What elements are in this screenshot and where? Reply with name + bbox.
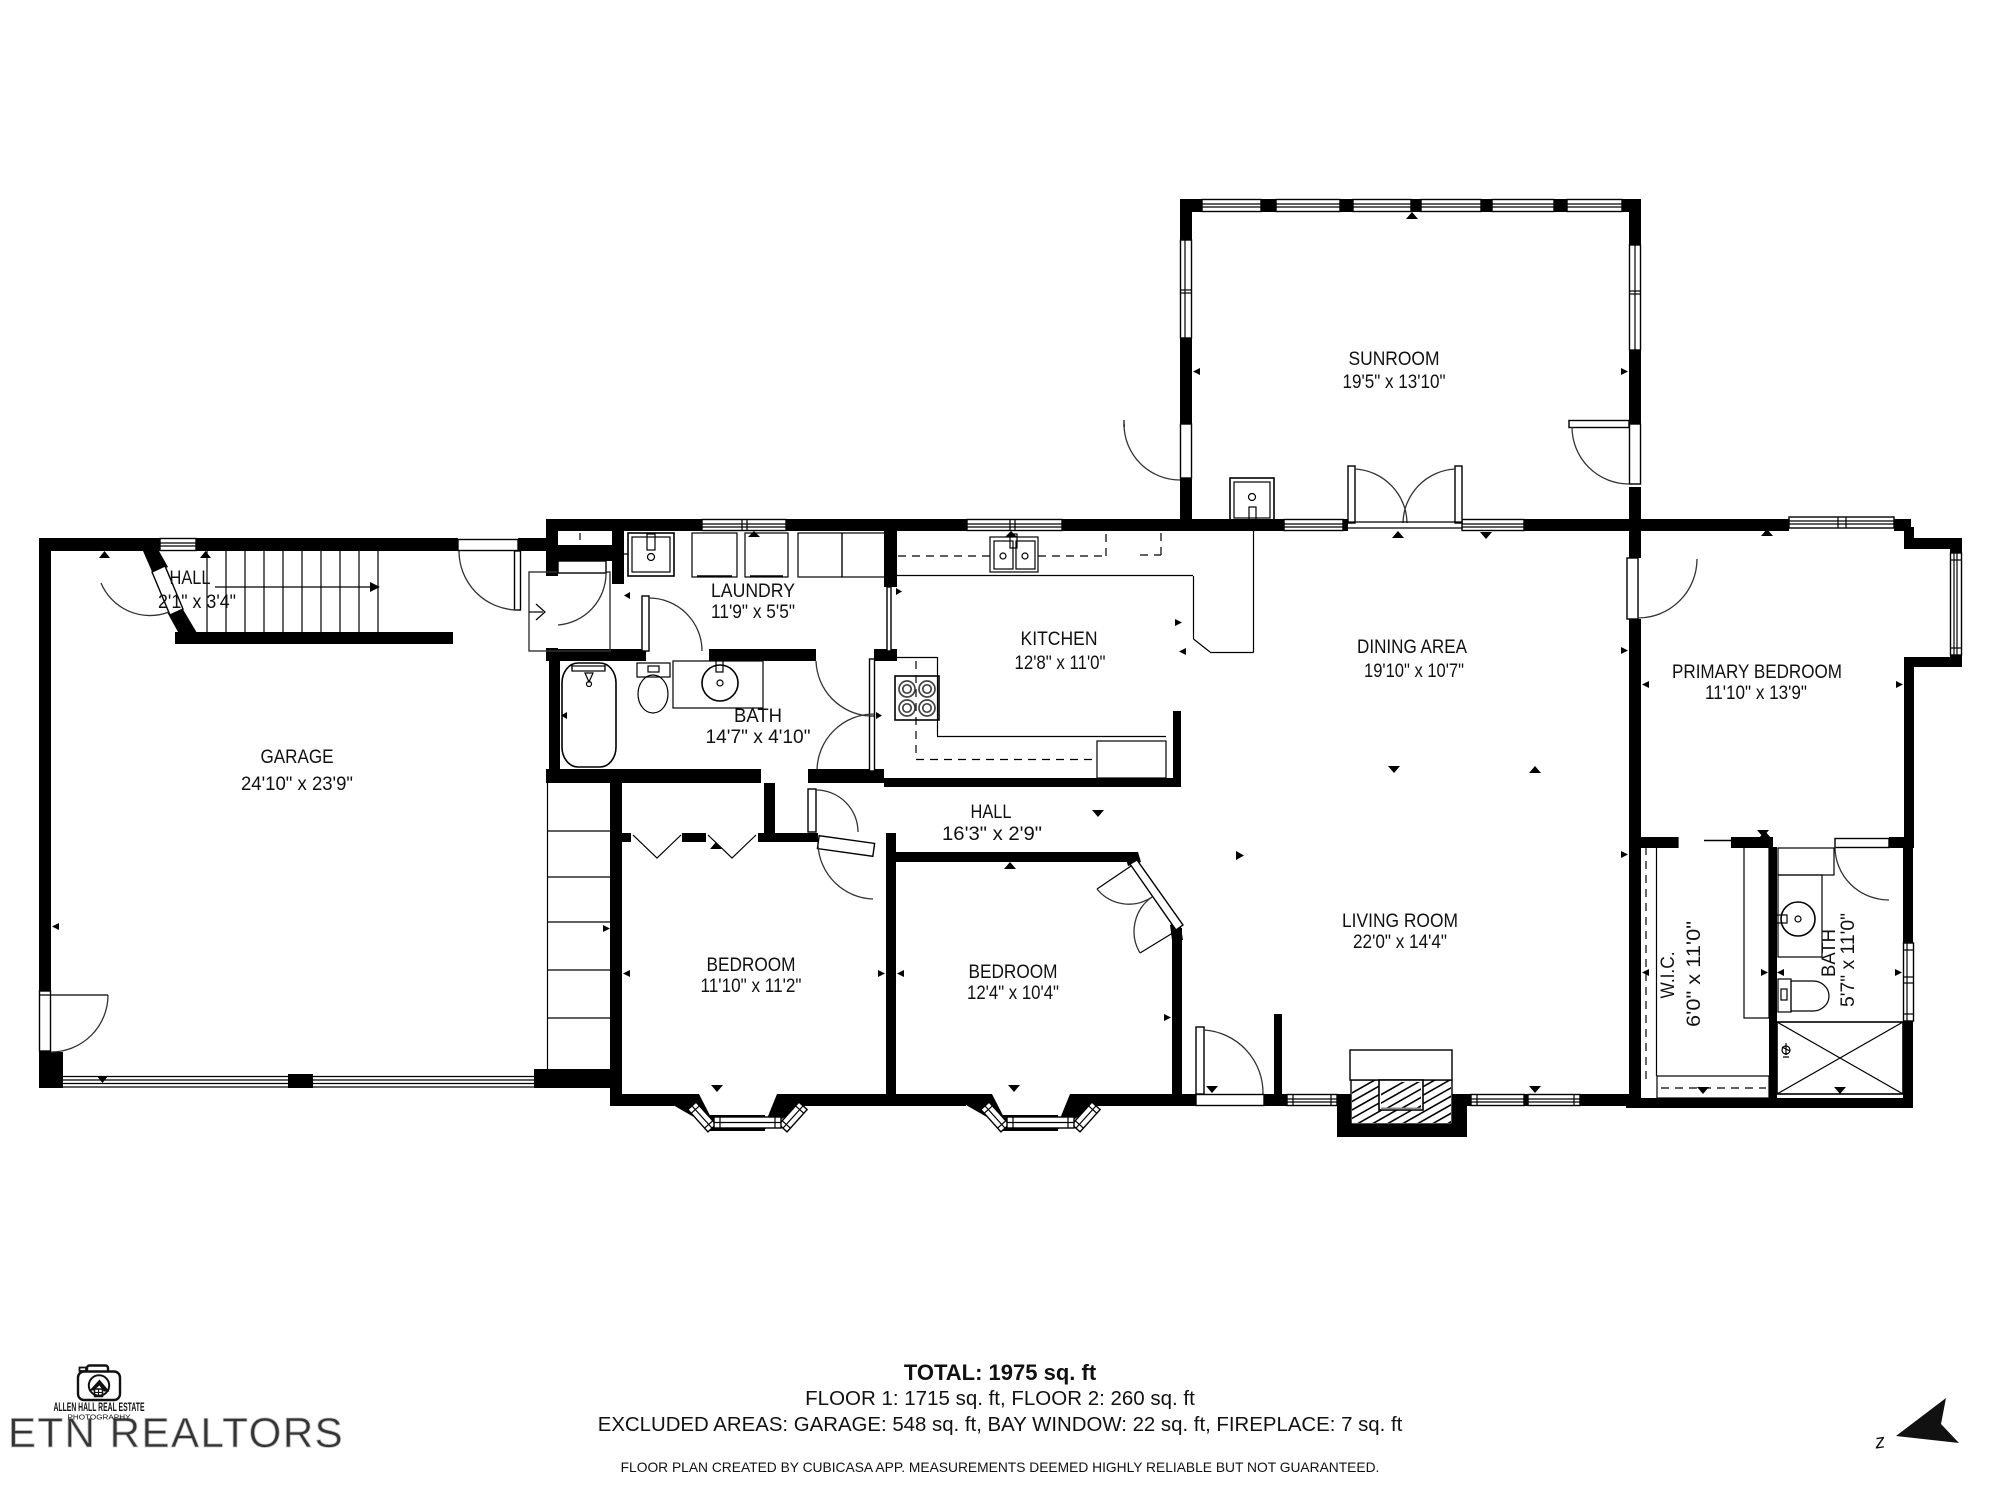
svg-text:2'1" x 3'4": 2'1" x 3'4"	[158, 591, 236, 613]
svg-text:FLOOR PLAN CREATED BY CUBICASA: FLOOR PLAN CREATED BY CUBICASA APP. MEAS…	[621, 1460, 1380, 1475]
svg-text:5'7" x 11'0": 5'7" x 11'0"	[1837, 913, 1859, 1007]
svg-text:SUNROOM: SUNROOM	[1349, 348, 1440, 370]
svg-text:LIVING ROOM: LIVING ROOM	[1342, 910, 1458, 932]
svg-text:19'10" x 10'7": 19'10" x 10'7"	[1364, 660, 1464, 682]
svg-text:14'7" x 4'10": 14'7" x 4'10"	[706, 726, 811, 748]
svg-text:11'9" x 5'5": 11'9" x 5'5"	[711, 601, 795, 623]
svg-text:ALLEN HALL REAL ESTATE: ALLEN HALL REAL ESTATE	[54, 1402, 145, 1414]
svg-text:6'0" x 11'0": 6'0" x 11'0"	[1683, 921, 1705, 1027]
svg-text:BATH: BATH	[734, 705, 782, 727]
svg-text:DINING AREA: DINING AREA	[1357, 636, 1467, 658]
svg-text:16'3" x 2'9": 16'3" x 2'9"	[942, 823, 1042, 845]
svg-text:PRIMARY BEDROOM: PRIMARY BEDROOM	[1672, 661, 1842, 683]
svg-text:EXCLUDED AREAS: GARAGE: 548 sq: EXCLUDED AREAS: GARAGE: 548 sq. ft, BAY …	[598, 1414, 1403, 1436]
svg-text:HALL: HALL	[170, 567, 211, 589]
svg-text:TOTAL: 1975 sq. ft: TOTAL: 1975 sq. ft	[904, 1360, 1097, 1385]
svg-text:HALL: HALL	[971, 801, 1012, 823]
svg-text:LAUNDRY: LAUNDRY	[711, 580, 795, 602]
svg-text:KITCHEN: KITCHEN	[1021, 628, 1098, 650]
svg-text:BEDROOM: BEDROOM	[707, 954, 796, 976]
svg-text:W.I.C.: W.I.C.	[1657, 952, 1679, 999]
svg-text:12'8" x 11'0": 12'8" x 11'0"	[1015, 652, 1106, 674]
svg-text:24'10" x 23'9": 24'10" x 23'9"	[241, 773, 353, 795]
svg-text:11'10" x 13'9": 11'10" x 13'9"	[1705, 682, 1807, 704]
svg-text:19'5" x 13'10": 19'5" x 13'10"	[1343, 371, 1446, 393]
svg-text:BEDROOM: BEDROOM	[969, 961, 1058, 983]
svg-text:ETN REALTORS: ETN REALTORS	[8, 1409, 344, 1456]
svg-text:GARAGE: GARAGE	[261, 746, 334, 768]
svg-text:12'4" x 10'4": 12'4" x 10'4"	[967, 982, 1059, 1004]
svg-text:FLOOR 1: 1715 sq. ft, FLOOR 2:: FLOOR 1: 1715 sq. ft, FLOOR 2: 260 sq. f…	[805, 1387, 1195, 1410]
svg-text:11'10" x 11'2": 11'10" x 11'2"	[701, 975, 802, 997]
svg-text:PHOTOGRAPHY: PHOTOGRAPHY	[68, 1415, 131, 1422]
svg-text:22'0" x 14'4": 22'0" x 14'4"	[1353, 931, 1447, 953]
